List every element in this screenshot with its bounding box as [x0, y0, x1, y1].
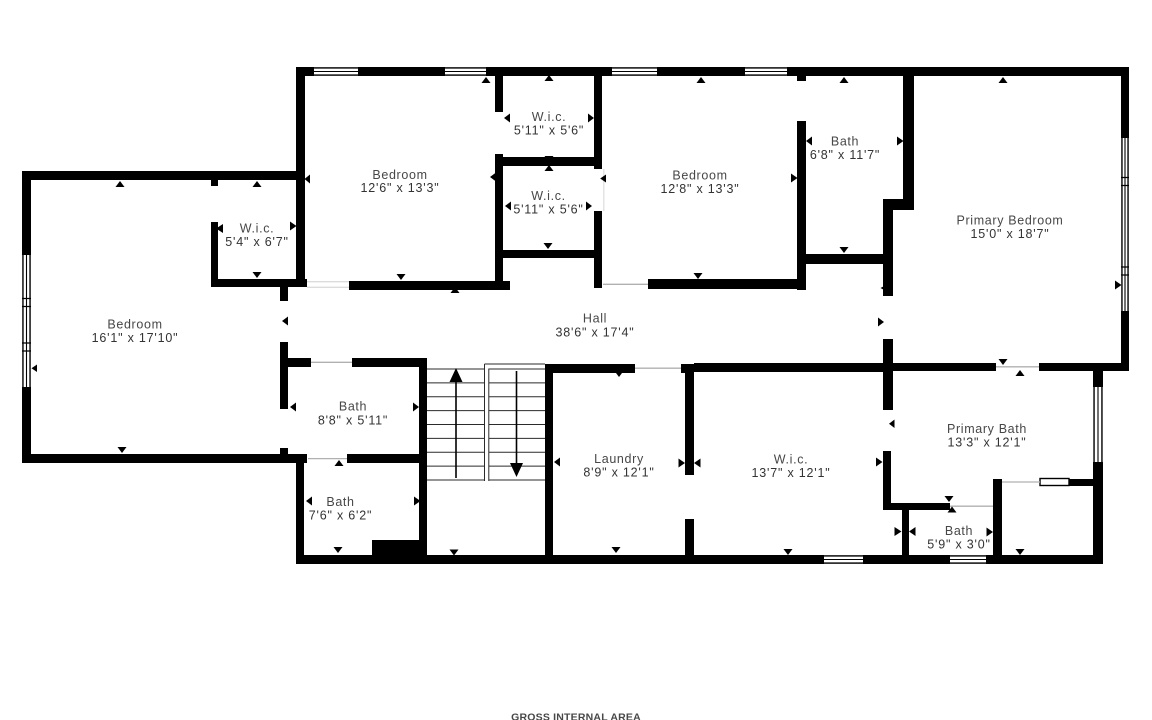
svg-text:5'4" x 6'7": 5'4" x 6'7": [225, 235, 288, 249]
svg-text:W.i.c.: W.i.c.: [532, 110, 566, 124]
svg-text:Bedroom: Bedroom: [672, 169, 727, 183]
svg-text:Primary Bedroom: Primary Bedroom: [957, 214, 1064, 228]
svg-text:12'8" x 13'3": 12'8" x 13'3": [661, 182, 740, 196]
svg-text:38'6" x 17'4": 38'6" x 17'4": [556, 326, 635, 340]
svg-text:Bath: Bath: [339, 400, 367, 414]
svg-text:W.i.c.: W.i.c.: [774, 453, 808, 467]
svg-text:6'8" x 11'7": 6'8" x 11'7": [810, 148, 880, 162]
svg-text:15'0" x 18'7": 15'0" x 18'7": [971, 227, 1050, 241]
svg-text:Hall: Hall: [583, 312, 607, 326]
svg-text:W.i.c.: W.i.c.: [531, 189, 565, 203]
svg-text:5'9" x 3'0": 5'9" x 3'0": [927, 537, 990, 551]
svg-text:Bedroom: Bedroom: [372, 168, 427, 182]
svg-text:Bath: Bath: [945, 524, 973, 538]
svg-text:Bath: Bath: [326, 495, 354, 509]
svg-text:12'6" x 13'3": 12'6" x 13'3": [361, 181, 440, 195]
svg-text:8'8" x 5'11": 8'8" x 5'11": [318, 414, 388, 428]
svg-text:5'11" x 5'6": 5'11" x 5'6": [513, 202, 583, 216]
svg-text:Laundry: Laundry: [594, 452, 644, 466]
svg-text:Bath: Bath: [831, 135, 859, 149]
svg-text:GROSS INTERNAL AREA: GROSS INTERNAL AREA: [511, 711, 641, 720]
svg-text:13'7" x 12'1": 13'7" x 12'1": [752, 466, 831, 480]
svg-text:W.i.c.: W.i.c.: [240, 222, 274, 236]
svg-text:Bedroom: Bedroom: [107, 318, 162, 332]
svg-text:7'6" x 6'2": 7'6" x 6'2": [309, 509, 372, 523]
svg-text:16'1" x 17'10": 16'1" x 17'10": [92, 331, 179, 345]
svg-text:8'9" x 12'1": 8'9" x 12'1": [583, 466, 654, 480]
svg-text:5'11" x 5'6": 5'11" x 5'6": [514, 123, 584, 137]
svg-text:Primary Bath: Primary Bath: [947, 422, 1027, 436]
svg-text:13'3" x 12'1": 13'3" x 12'1": [948, 435, 1027, 449]
